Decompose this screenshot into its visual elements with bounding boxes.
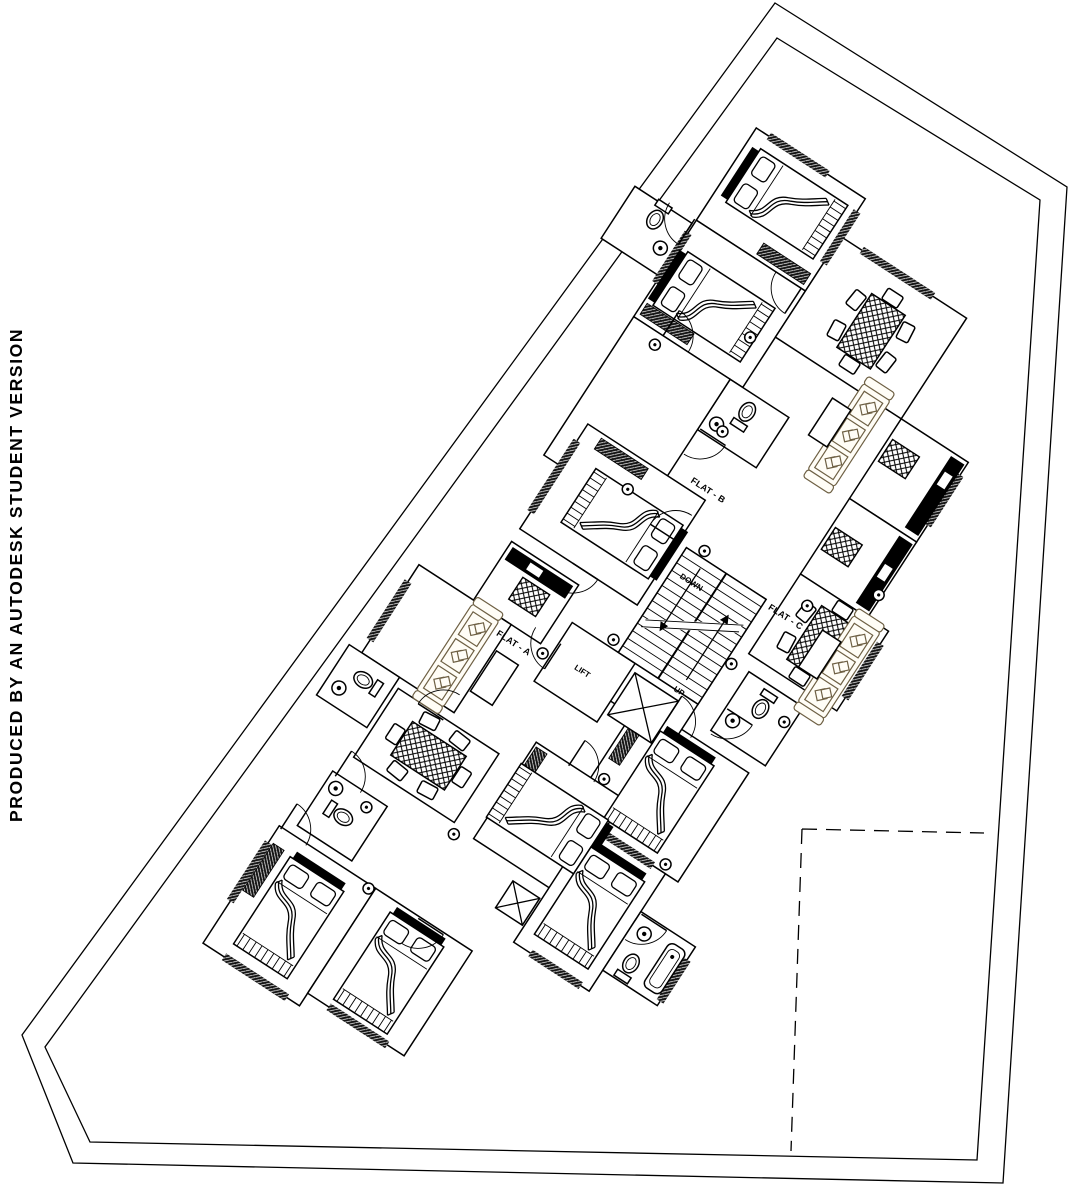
floor-plan-sheet: PRODUCED BY AN AUTODESK STUDENT VERSION	[0, 0, 1089, 1187]
autodesk-student-watermark: PRODUCED BY AN AUTODESK STUDENT VERSION	[6, 328, 26, 822]
